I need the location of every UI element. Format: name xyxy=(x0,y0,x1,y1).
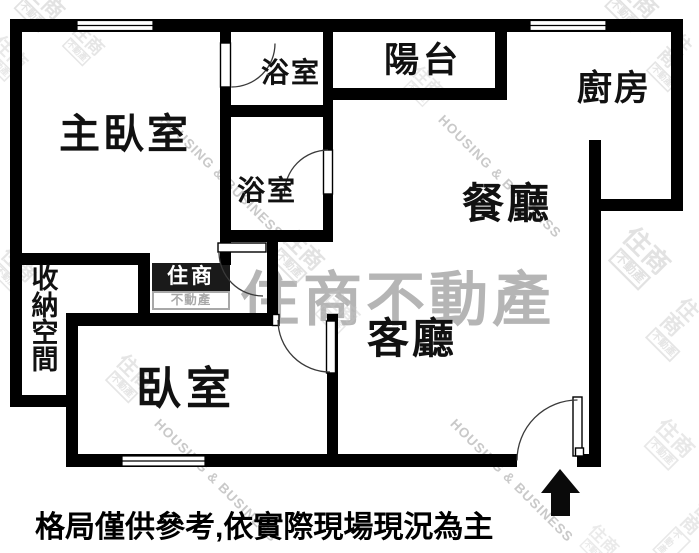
wall-bedroom-left xyxy=(66,314,78,467)
room-label-kitchen: 廚房 xyxy=(577,71,651,106)
wall-bedroom-top xyxy=(66,313,272,326)
room-label-bathroom-upper: 浴室 xyxy=(261,59,321,87)
wall-hall-stub xyxy=(267,240,278,314)
room-label-master-bedroom: 主臥室 xyxy=(59,114,191,155)
wall-bath-right-upper xyxy=(323,19,333,151)
room-label-bathroom-lower: 浴室 xyxy=(237,177,297,205)
wall-storage-right xyxy=(138,253,150,314)
entrance-arrow-icon xyxy=(541,469,580,516)
room-label-balcony: 陽台 xyxy=(384,43,462,78)
room-label-dining-room: 餐廳 xyxy=(462,183,552,225)
wall-bath-divider xyxy=(220,105,333,117)
room-label-bedroom: 臥室 xyxy=(136,366,236,411)
door-leaf-entrance xyxy=(573,397,582,456)
wall-balcony-bottom xyxy=(323,88,505,100)
wall-dining-right xyxy=(589,140,601,467)
wall-master-right-upper xyxy=(220,19,231,43)
wall-kitchen-right xyxy=(671,19,683,211)
door-jamb-entrance xyxy=(576,448,584,456)
door-leaf-bath-upper xyxy=(221,43,231,87)
wall-storage-bottom xyxy=(10,395,66,407)
door-leaf-hall xyxy=(218,243,266,252)
room-label-living-room: 客廳 xyxy=(367,318,457,360)
room-label-storage: 收納空間 xyxy=(28,264,56,372)
floorplan-page: 住商不動產 HOUSING & BUSINESS HOUSING & BUSIN… xyxy=(0,0,699,553)
door-leaf-bath-lower xyxy=(324,150,333,194)
door-arc-entrance xyxy=(517,400,578,461)
door-arc-bedroom xyxy=(278,320,330,372)
wall-kitchen-bottom xyxy=(589,199,683,211)
disclaimer-text: 格局僅供參考,依實際現場現況為主 xyxy=(35,502,493,546)
wall-left xyxy=(10,19,22,407)
wall-balcony-right xyxy=(495,19,507,100)
door-leaf-bedroom xyxy=(327,321,336,373)
